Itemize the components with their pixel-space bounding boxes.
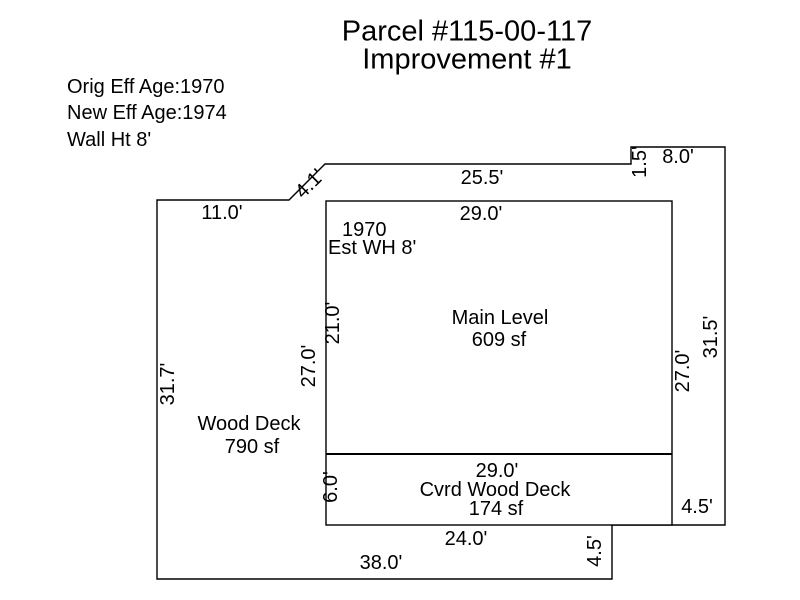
dim-main-left: 21.0' — [323, 302, 343, 345]
dim-outer-right: 31.5' — [701, 316, 721, 359]
dim-right-strip: 4.5' — [681, 497, 713, 517]
dim-outer-bottom: 38.0' — [360, 553, 403, 573]
cvrd-wood-deck-name: Cvrd Wood Deck — [420, 480, 571, 500]
main-level-est-wall-height: Est WH 8' — [328, 238, 416, 258]
dim-main-top: 29.0' — [460, 204, 503, 224]
dim-outer-left: 31.7' — [158, 363, 178, 406]
cvrd-wood-deck-area: 174 sf — [469, 499, 523, 519]
dim-cvrd-bottom: 24.0' — [445, 529, 488, 549]
parcel-sketch-page: Parcel #115-00-117 Improvement #1 Orig E… — [0, 0, 800, 600]
dim-cvrd-top: 29.0' — [476, 461, 519, 481]
dim-outer-top: 25.5' — [461, 168, 504, 188]
dim-inner-left-total: 27.0' — [299, 345, 319, 388]
main-level-name: Main Level — [452, 308, 549, 328]
dim-cvrd-left: 6.0' — [321, 471, 341, 503]
dim-notch-height: 1.5' — [630, 146, 650, 178]
dim-inner-right-total: 27.0' — [673, 350, 693, 393]
dim-bottom-step: 4.5' — [585, 535, 605, 567]
wood-deck-area: 790 sf — [225, 437, 279, 457]
main-level-area: 609 sf — [472, 330, 526, 350]
sketch-drawing — [0, 0, 800, 600]
dim-outer-top-left: 11.0' — [201, 203, 242, 223]
wood-deck-name: Wood Deck — [197, 414, 300, 434]
dim-notch-width: 8.0' — [662, 147, 694, 167]
